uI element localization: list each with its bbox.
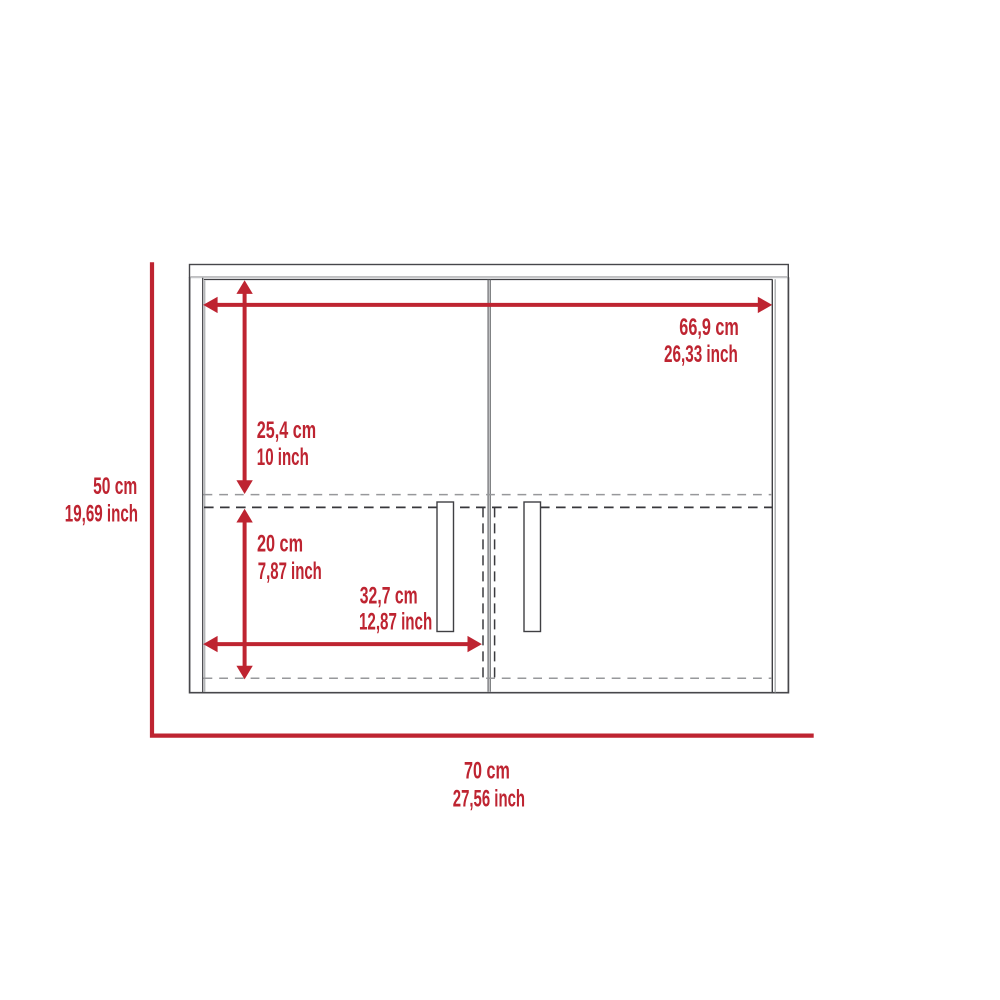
svg-text:10 inch: 10 inch — [257, 444, 309, 471]
svg-text:7,87 inch: 7,87 inch — [258, 558, 322, 585]
svg-text:20 cm: 20 cm — [257, 531, 303, 558]
svg-text:32,7 cm: 32,7 cm — [360, 583, 418, 610]
svg-text:12,87 inch: 12,87 inch — [359, 609, 432, 636]
svg-text:25,4 cm: 25,4 cm — [257, 417, 316, 444]
svg-text:50 cm: 50 cm — [93, 473, 137, 500]
svg-text:66,9 cm: 66,9 cm — [679, 314, 739, 341]
svg-text:27,56 inch: 27,56 inch — [453, 786, 525, 813]
svg-text:70 cm: 70 cm — [464, 758, 510, 785]
svg-text:26,33 inch: 26,33 inch — [664, 341, 738, 368]
svg-text:19,69 inch: 19,69 inch — [65, 501, 138, 528]
